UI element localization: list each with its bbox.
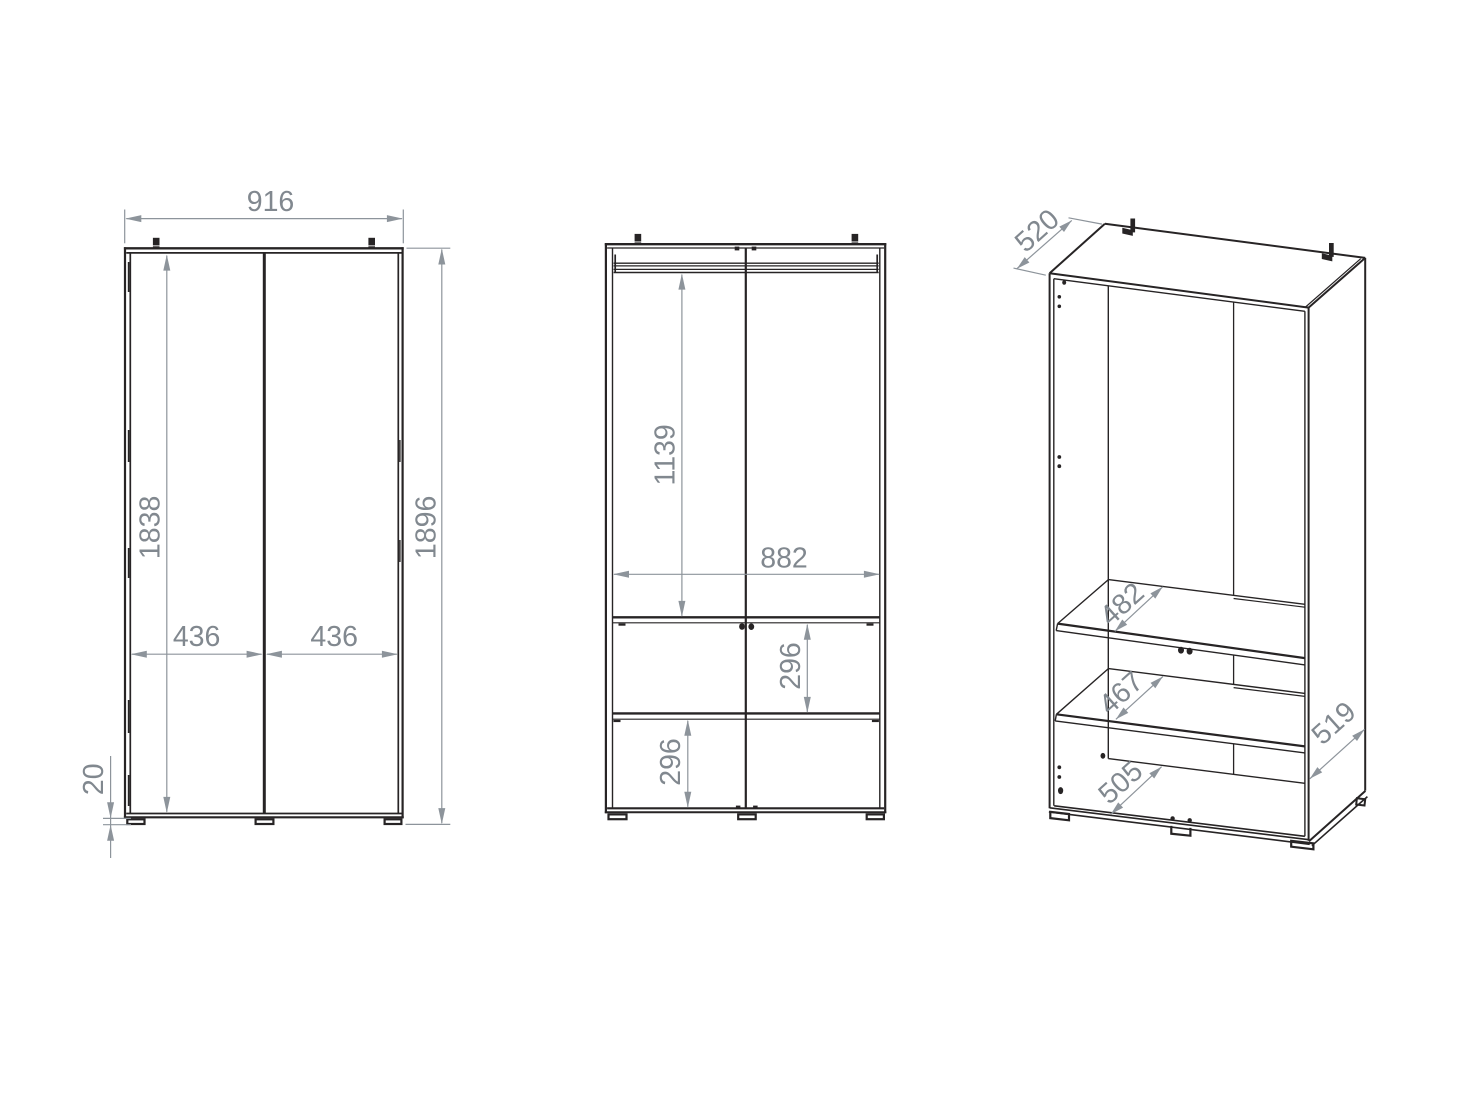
svg-text:519: 519 [1306, 696, 1363, 752]
svg-text:1896: 1896 [410, 496, 442, 559]
svg-text:916: 916 [247, 186, 295, 218]
svg-text:296: 296 [775, 642, 807, 690]
svg-text:1838: 1838 [134, 496, 166, 559]
svg-text:505: 505 [1092, 755, 1149, 811]
svg-text:436: 436 [310, 621, 358, 653]
svg-text:882: 882 [760, 543, 808, 575]
svg-text:1139: 1139 [650, 424, 682, 485]
svg-text:436: 436 [173, 621, 221, 653]
svg-text:520: 520 [1009, 203, 1066, 259]
svg-text:20: 20 [78, 763, 110, 795]
svg-text:296: 296 [655, 738, 687, 786]
